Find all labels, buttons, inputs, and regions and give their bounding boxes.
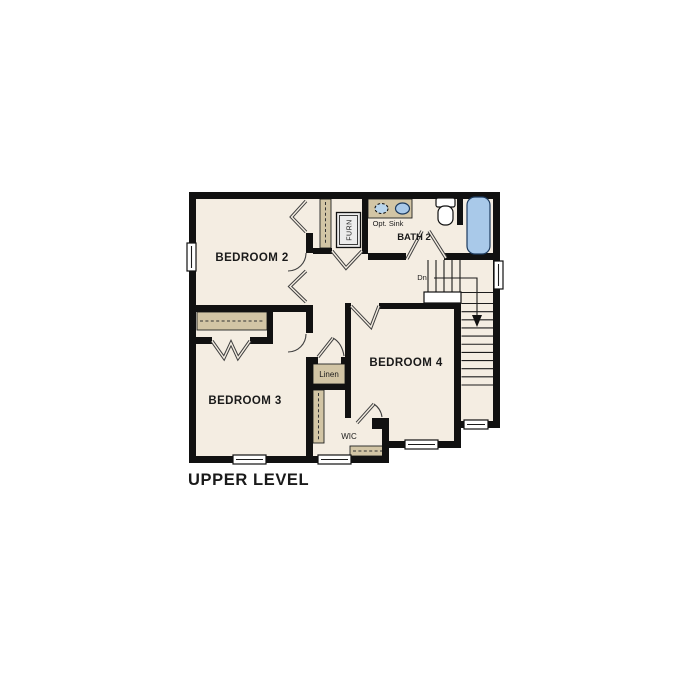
bath-2-label: BATH 2 [397,232,431,243]
wall-outer-left [189,192,196,463]
wall-bedroom2-bottom [189,305,313,312]
wall-linen-top-right [341,357,345,364]
bedroom-2-label: BEDROOM 2 [215,252,288,264]
wall-bedroom3-right-lower [306,357,313,463]
wall-tub-nook [457,192,463,225]
optional-sink-label: Opt. Sink [373,219,404,228]
wall-bedroom4-left [345,303,351,418]
floor-plan: FURN BEDROOM 2 BEDROOM 3 BEDROOM 4 BATH … [0,0,687,687]
wall-bath-bottom-left [368,253,406,260]
wall-outer-right [493,192,500,428]
furnace-unit: FURN [337,213,361,248]
bedroom-3-label: BEDROOM 3 [208,395,281,407]
plan-title: UPPER LEVEL [188,471,309,489]
wall-linen-bottom [306,384,345,390]
wall-bedroom4-top [379,303,461,309]
wall-closet-front-right [250,337,273,344]
wall-furnace-right [362,192,368,254]
wall-closet-front-left [196,337,212,344]
bathtub-fixture [467,197,490,254]
stairs-down-label: Dn [417,273,427,282]
wall-bedroom4-right [454,303,461,448]
linen-label: Linen [319,370,339,379]
sink [396,203,410,214]
wic-label: WIC [341,432,357,441]
furnace-label: FURN [346,219,353,240]
wall-bedroom2-right [306,233,313,253]
wall-linen-top-left [313,357,318,364]
floor-plan-page: FURN BEDROOM 2 BEDROOM 3 BEDROOM 4 BATH … [0,0,687,687]
wall-bedroom3-right-upper [306,312,313,333]
wall-outer-bottom [189,456,389,463]
sink-optional [375,204,388,214]
wall-furnace-bottom [313,248,332,254]
stair-landing [424,292,461,303]
toilet-bowl [438,206,453,225]
bedroom-4-label: BEDROOM 4 [369,357,442,369]
